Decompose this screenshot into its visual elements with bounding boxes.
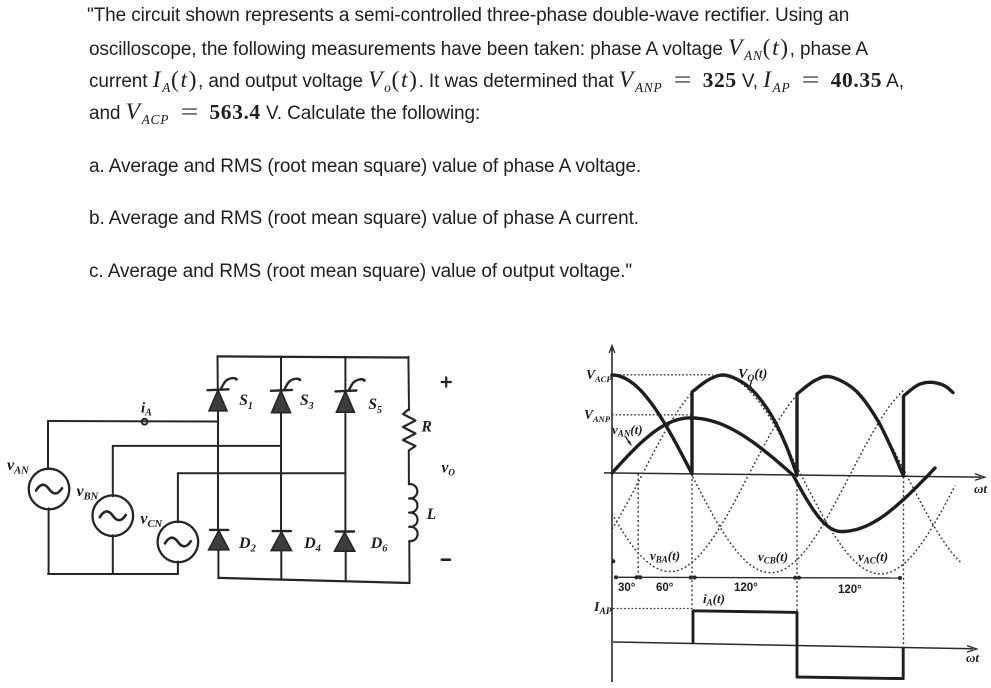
svg-text:iA: iA: [141, 401, 152, 419]
svg-text:vBN: vBN: [77, 483, 99, 503]
svg-text:S3: S3: [300, 392, 314, 412]
svg-text:VACP: VACP: [586, 367, 612, 384]
svg-text:D4: D4: [303, 535, 321, 555]
svg-text:IAP: IAP: [593, 600, 612, 617]
svg-text:vAN(t): vAN(t): [612, 422, 643, 439]
svg-text:60°: 60°: [656, 582, 674, 594]
svg-text:120°: 120°: [734, 582, 758, 594]
svg-text:120°: 120°: [838, 584, 862, 596]
svg-text:ωt: ωt: [966, 650, 979, 665]
svg-text:VANP: VANP: [584, 407, 611, 424]
svg-text:R: R: [421, 419, 432, 436]
svg-text:D6: D6: [370, 535, 389, 555]
svg-text:30°: 30°: [618, 582, 636, 594]
svg-text:S1: S1: [239, 392, 253, 412]
svg-text:vBA(t): vBA(t): [650, 548, 680, 565]
svg-text:ωt: ωt: [974, 481, 987, 496]
svg-text:L: L: [426, 506, 436, 523]
svg-text:vO: vO: [442, 460, 456, 478]
svg-text:vCN: vCN: [140, 511, 162, 531]
svg-text:D2: D2: [238, 535, 257, 555]
svg-text:vCB(t): vCB(t): [758, 549, 788, 566]
svg-text:S5: S5: [368, 396, 382, 416]
svg-text:vAC(t): vAC(t): [858, 549, 888, 566]
svg-text:iA(t): iA(t): [703, 591, 725, 608]
svg-text:vAN: vAN: [7, 457, 29, 477]
svg-text:VO(t): VO(t): [738, 367, 767, 384]
